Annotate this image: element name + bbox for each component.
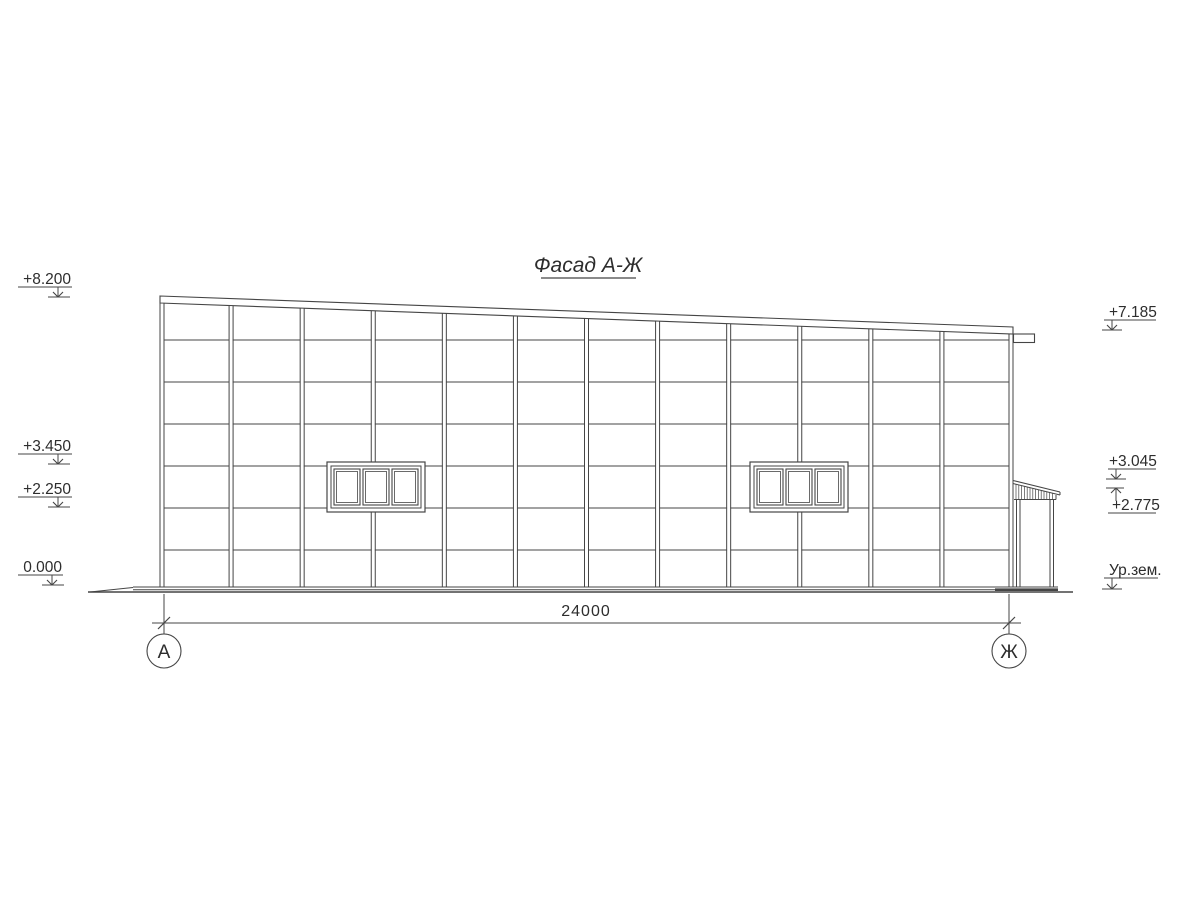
elevation-mark-barb — [58, 292, 63, 297]
elevation-mark-barb — [1116, 474, 1121, 479]
mullion-core — [160, 304, 163, 587]
elevation-mark-barb — [47, 580, 52, 585]
elevation-mark-label-right-3: Ур.зем. — [1109, 562, 1162, 579]
drawing-title: Фасад А-Ж — [534, 254, 644, 277]
roof-canopy — [1014, 334, 1035, 343]
elevation-mark-barb — [58, 502, 63, 507]
elevation-mark-label-right-1: +3.045 — [1109, 453, 1157, 470]
elevation-mark-barb — [52, 580, 57, 585]
elevation-mark-barb — [1107, 325, 1112, 330]
elevation-mark-barb — [1116, 488, 1121, 493]
elevation-mark-barb — [53, 502, 58, 507]
elevation-mark-barb — [1107, 584, 1112, 589]
mullion-core — [798, 327, 801, 587]
mullion-core — [443, 314, 446, 587]
elevation-mark-barb — [1111, 474, 1116, 479]
mullion-core — [229, 306, 232, 587]
annex-roof-top-inner — [1013, 484, 1060, 496]
elevation-mark-label-right-2: +2.775 — [1112, 497, 1160, 514]
axis-bubble-label-a: А — [158, 642, 171, 663]
mullion-core — [372, 311, 375, 587]
elevation-mark-barb — [1111, 488, 1116, 493]
mullion-core — [301, 309, 304, 587]
elevation-mark-label-left-1: +3.450 — [23, 438, 71, 455]
elevation-mark-barb — [53, 459, 58, 464]
mullion-core — [940, 332, 943, 587]
facade-elevation-drawing: Фасад А-Ж 24000 А Ж +8.200 +3.450 +2.250… — [0, 0, 1200, 900]
mullion-core — [727, 324, 730, 587]
elevation-mark-barb — [1112, 584, 1117, 589]
elevation-mark-label-left-0: +8.200 — [23, 271, 71, 288]
dimension-value: 24000 — [561, 603, 611, 620]
mullion-core — [869, 330, 872, 587]
elevation-mark-label-right-0: +7.185 — [1109, 304, 1157, 321]
annex-roof-top — [1013, 481, 1060, 493]
drawing-sheet: Фасад А-Ж 24000 А Ж +8.200 +3.450 +2.250… — [0, 0, 1200, 900]
mullion-core — [585, 319, 588, 587]
mullion-core — [1009, 335, 1012, 587]
elevation-mark-barb — [53, 292, 58, 297]
elevation-mark-label-left-3: 0.000 — [23, 559, 62, 576]
axis-bubble-label-zh: Ж — [1000, 642, 1018, 663]
mullion-core — [656, 322, 659, 587]
elevation-mark-barb — [58, 459, 63, 464]
elevation-mark-barb — [1112, 325, 1117, 330]
mullion-core — [514, 317, 517, 587]
elevation-mark-label-left-2: +2.250 — [23, 481, 71, 498]
